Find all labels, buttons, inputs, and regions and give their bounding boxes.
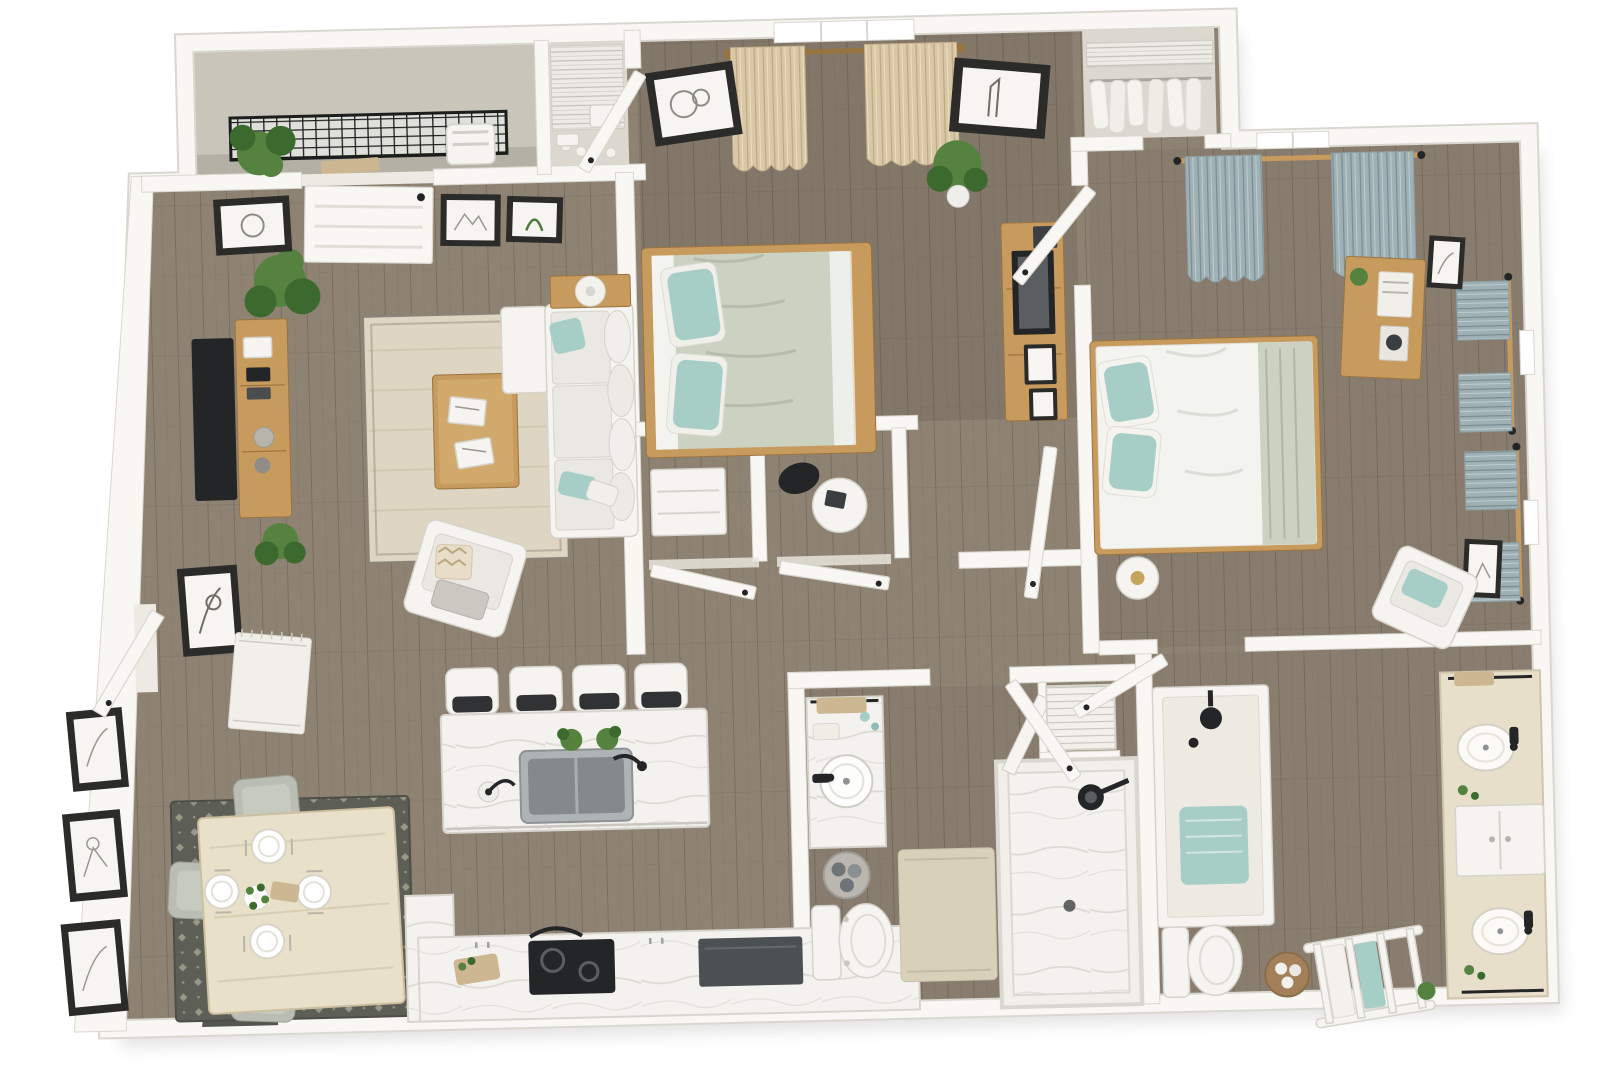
teal-pillow-2 bbox=[672, 359, 723, 430]
bedroom1-art-right bbox=[949, 58, 1051, 139]
bedroom2-teal-pillow-1 bbox=[1103, 361, 1156, 423]
wall-closet2-bottom-right bbox=[1205, 134, 1231, 149]
balcony-chair bbox=[446, 124, 495, 165]
bedroom2-bed bbox=[1090, 336, 1323, 556]
room-closet2 bbox=[1086, 40, 1214, 136]
vanity-tray bbox=[813, 723, 839, 740]
plan bbox=[39, 4, 1563, 1059]
wall-bath1-top-left bbox=[788, 669, 930, 688]
kitchen-island bbox=[441, 709, 710, 833]
console-vase-1 bbox=[254, 427, 274, 447]
floor-plan-stage bbox=[0, 0, 1600, 1066]
bath1-vanity bbox=[806, 696, 886, 848]
bath2-toilet bbox=[1162, 925, 1243, 998]
vanity-towel-top bbox=[1454, 671, 1494, 686]
vanity-towel-bar-bottom bbox=[1462, 990, 1544, 992]
console-box-1 bbox=[246, 367, 270, 382]
vanity-faucet-2 bbox=[1524, 910, 1534, 934]
bath1-towel-basket bbox=[823, 852, 870, 899]
bedroom2-dresser bbox=[1340, 256, 1425, 380]
vanity-faucet-1 bbox=[1509, 727, 1519, 751]
floor-plan-render bbox=[0, 0, 1600, 1066]
bedroom2-right-window-1 bbox=[1520, 330, 1535, 374]
bedroom2-right-window-2 bbox=[1524, 500, 1539, 544]
patio-door bbox=[304, 186, 433, 263]
room-dining bbox=[164, 772, 414, 1026]
wall-bedroom2-bath2-left bbox=[1099, 640, 1157, 655]
console-box-2 bbox=[247, 387, 271, 400]
wall-closet1-right bbox=[624, 30, 641, 68]
bath1-toilet bbox=[811, 903, 894, 980]
dresser-books bbox=[1377, 272, 1413, 317]
bath2-basket bbox=[1265, 952, 1310, 997]
wall-closet1-left bbox=[534, 40, 551, 174]
magazine-1 bbox=[448, 397, 486, 426]
entry-rug bbox=[228, 628, 312, 734]
dishwasher bbox=[698, 936, 803, 987]
bedroom2-teal-pillow-2 bbox=[1108, 432, 1157, 492]
bedroom1-art-left bbox=[645, 61, 743, 147]
wall-nook-right bbox=[892, 428, 909, 558]
teal-bath-mat bbox=[1179, 805, 1249, 885]
console-books bbox=[243, 337, 271, 358]
console-table-lamp bbox=[550, 274, 631, 308]
bedroom1-bed bbox=[641, 242, 876, 458]
bedroom1-window bbox=[774, 19, 914, 42]
left-wall-art bbox=[55, 707, 134, 1017]
chevron-pillow bbox=[435, 544, 473, 580]
closet2-wire-shelf bbox=[1086, 40, 1213, 67]
wall-balcony-living-left bbox=[141, 172, 301, 192]
wall-bedroom1-hall bbox=[959, 549, 1091, 568]
wall-closet2-bottom-left bbox=[1071, 136, 1143, 152]
sofa-chaise bbox=[501, 306, 549, 393]
closet-nook-dresser bbox=[651, 468, 727, 536]
teal-pillow-1 bbox=[666, 268, 721, 342]
bath2-tub-shower bbox=[1152, 685, 1274, 928]
magazine-2 bbox=[454, 437, 494, 469]
tv-screen bbox=[191, 338, 237, 501]
bedroom2-curtain-left bbox=[1185, 155, 1264, 283]
dining-table bbox=[198, 807, 405, 1014]
hand-towel bbox=[816, 697, 866, 714]
bath2-double-vanity bbox=[1440, 670, 1548, 998]
bedroom1-curtain-left bbox=[730, 46, 807, 172]
bedroom2-art-top bbox=[1426, 235, 1465, 289]
bath1-mat bbox=[898, 848, 997, 982]
bedroom2-nightstand bbox=[1116, 557, 1159, 600]
media-console bbox=[235, 319, 292, 518]
